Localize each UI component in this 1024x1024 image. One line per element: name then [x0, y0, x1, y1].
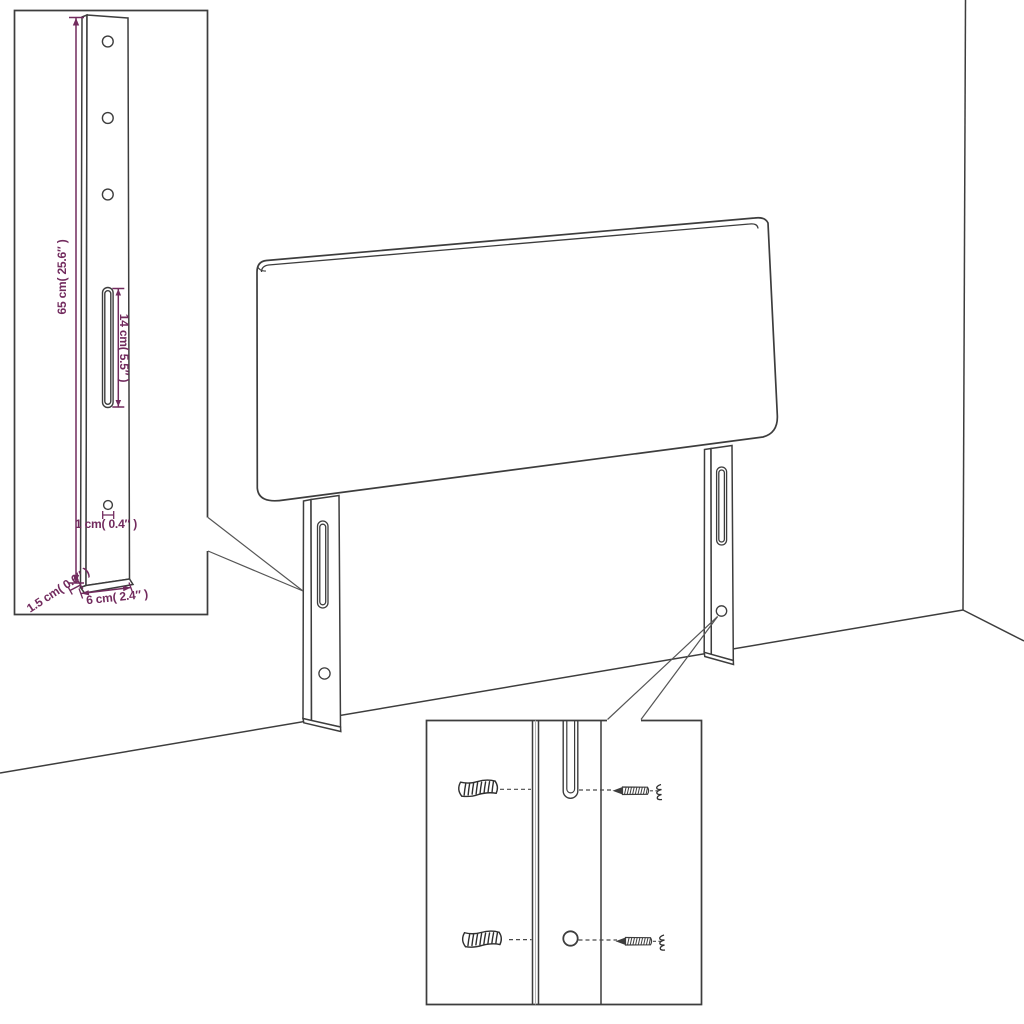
callout-leader-lines: [208, 518, 718, 720]
headboard-left-leg: [303, 496, 341, 732]
headboard-right-leg: [704, 446, 733, 665]
headboard-panel: [257, 218, 777, 501]
leg-detail-leader: [208, 518, 303, 592]
diagram-artwork: [0, 0, 1024, 1024]
leg-height-label: 65 cm( 25.6″ ): [55, 240, 69, 315]
mounting-detail-inset: [427, 721, 702, 1005]
inset-leg-drawing: [81, 15, 134, 593]
slot-length-label: 14 cm( 5.5″ ): [117, 314, 131, 383]
wall-corner-line: [963, 0, 966, 610]
diagram-canvas: 65 cm( 25.6″ ) 14 cm( 5.5″ ) 1 cm( 0.4″ …: [0, 0, 1024, 1024]
floor-line-right: [963, 610, 1024, 641]
hole-diameter-label: 1 cm( 0.4″ ): [75, 517, 137, 531]
